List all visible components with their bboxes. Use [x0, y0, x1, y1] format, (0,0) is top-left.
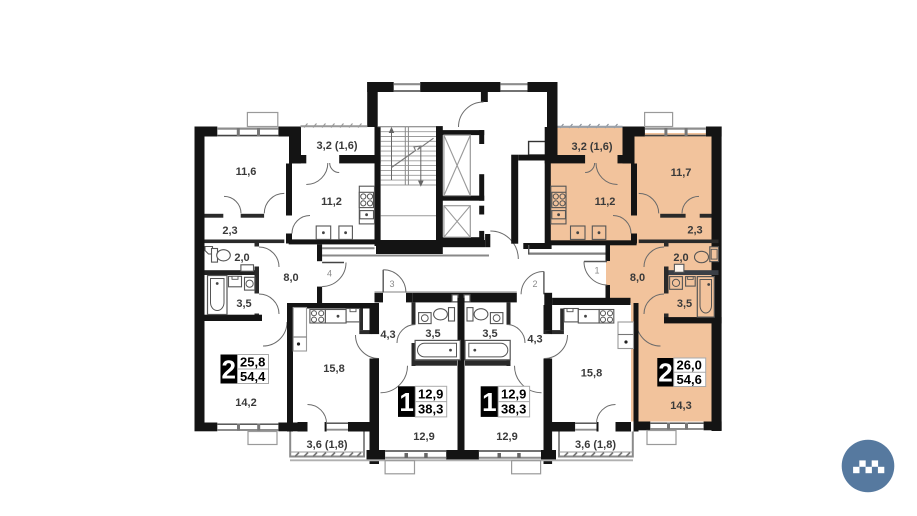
svg-text:3,2 (1,6): 3,2 (1,6): [572, 141, 613, 153]
svg-text:12,9: 12,9: [496, 431, 517, 443]
svg-text:38,3: 38,3: [501, 402, 526, 417]
svg-text:2: 2: [658, 358, 672, 388]
svg-text:12,9: 12,9: [413, 431, 434, 443]
svg-text:3,5: 3,5: [236, 298, 251, 310]
svg-text:1: 1: [594, 266, 599, 276]
svg-text:12,9: 12,9: [501, 387, 526, 402]
svg-text:2: 2: [532, 279, 537, 289]
svg-text:3,6 (1,8): 3,6 (1,8): [575, 439, 616, 451]
svg-text:11,6: 11,6: [236, 166, 257, 178]
svg-text:3,5: 3,5: [425, 328, 440, 340]
svg-text:25,8: 25,8: [240, 355, 265, 370]
svg-text:1: 1: [482, 387, 496, 417]
svg-text:4: 4: [327, 269, 332, 279]
svg-text:3,5: 3,5: [677, 298, 692, 310]
svg-text:11,2: 11,2: [321, 196, 342, 208]
svg-text:3,6 (1,8): 3,6 (1,8): [307, 439, 348, 451]
svg-text:2,3: 2,3: [222, 225, 237, 237]
svg-text:8,0: 8,0: [630, 272, 645, 284]
svg-text:14,2: 14,2: [235, 397, 256, 409]
svg-text:2,0: 2,0: [673, 252, 688, 264]
svg-text:15,8: 15,8: [323, 363, 344, 375]
svg-text:3,5: 3,5: [482, 328, 497, 340]
svg-text:15,8: 15,8: [581, 368, 602, 380]
svg-text:2,3: 2,3: [687, 225, 702, 237]
svg-text:14,3: 14,3: [670, 400, 691, 412]
svg-text:4,3: 4,3: [527, 334, 542, 346]
svg-text:26,0: 26,0: [677, 358, 702, 373]
svg-text:8,0: 8,0: [283, 272, 298, 284]
svg-text:2,0: 2,0: [234, 252, 249, 264]
svg-text:3: 3: [389, 279, 394, 289]
svg-text:11,2: 11,2: [595, 196, 616, 208]
svg-text:1: 1: [399, 387, 413, 417]
svg-text:11,7: 11,7: [671, 167, 692, 179]
svg-text:54,4: 54,4: [240, 369, 266, 384]
svg-text:12,9: 12,9: [418, 387, 443, 402]
svg-text:38,3: 38,3: [418, 402, 443, 417]
svg-text:4,3: 4,3: [380, 329, 395, 341]
svg-text:54,6: 54,6: [677, 372, 702, 387]
svg-text:2: 2: [221, 355, 235, 385]
svg-text:3,2 (1,6): 3,2 (1,6): [317, 140, 358, 152]
